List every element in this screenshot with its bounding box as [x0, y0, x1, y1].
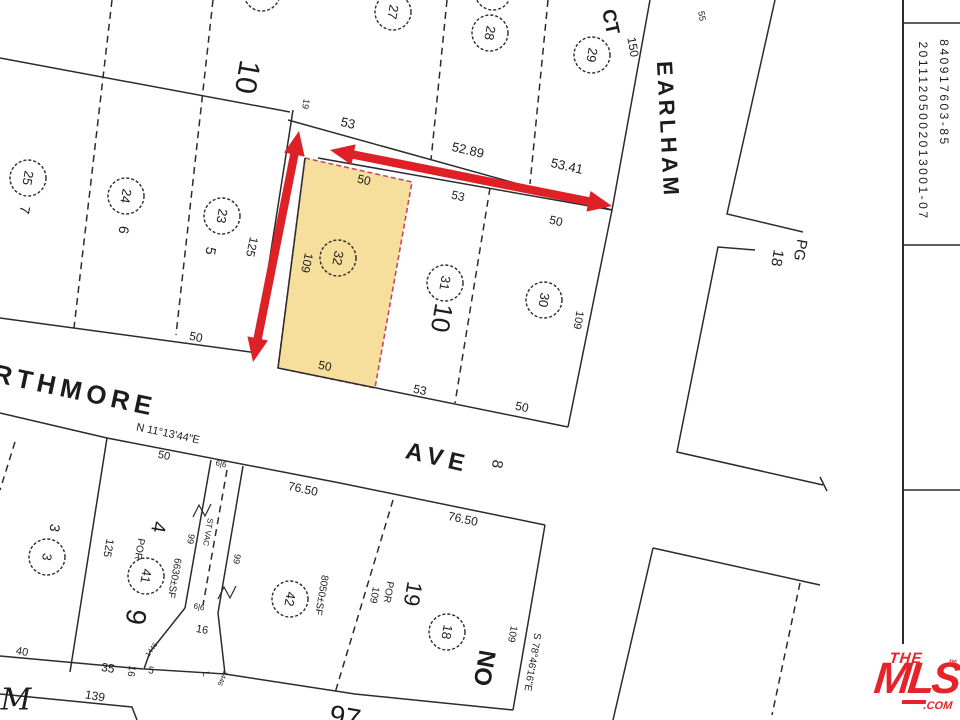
lot-number-18: 18 [438, 624, 455, 641]
parcel-32-highlight [278, 158, 412, 388]
map-label: 76.50 [447, 509, 480, 529]
street-name-swarthmore: RTHMORE [0, 358, 160, 422]
map-label: 16 [195, 623, 209, 637]
parcel-boundary-line [613, 548, 653, 720]
lot-circle-partial [475, 0, 511, 10]
plat-id-1: 840917603-85 [937, 39, 951, 146]
map-label: 8 [488, 458, 506, 469]
vacated-strip-flag [144, 608, 225, 674]
lot-number-3: 3 [39, 552, 55, 562]
map-label: 50 [548, 213, 564, 230]
lot-number-24: 24 [117, 188, 134, 205]
lot-boundary-dashed [0, 442, 15, 490]
map-label: 53 [450, 188, 466, 205]
earlham-west-edge [568, 0, 650, 427]
map-label: 53 [339, 114, 356, 132]
lot-boundary-dashed [431, 0, 447, 160]
map-label: POR [381, 580, 396, 603]
lot-boundary-dashed [74, 0, 112, 328]
map-label: 52.89 [450, 139, 485, 161]
map-label: 125 [243, 236, 261, 259]
map-label: 35 [100, 660, 116, 676]
map-label: 97 [327, 699, 363, 720]
parcel-boundary-line [653, 548, 820, 585]
map-label: 109 [367, 586, 381, 605]
map-label: 5 [147, 665, 155, 677]
lot-number-23: 23 [213, 208, 230, 225]
street-name-ct: CT [597, 7, 623, 37]
lot-number-29: 29 [583, 47, 600, 64]
mls-logo-tm: ™ [947, 658, 957, 668]
map-label: 4 [146, 520, 170, 535]
map-label: 6630±SF [165, 557, 183, 599]
map-label: 7 [16, 205, 33, 216]
street-name-earlham: EARLHAM [652, 60, 684, 199]
red-arrow-lot-depth-head [247, 336, 268, 362]
lot-circle-partial [244, 0, 280, 11]
map-label: 99 [231, 553, 243, 565]
lot-boundary-dashed [176, 0, 213, 335]
lot-number-28: 28 [481, 25, 498, 42]
map-label: 53 [412, 382, 428, 399]
lot-number-41: 41 [137, 568, 154, 585]
map-label: 109 [570, 310, 585, 330]
map-label: POR [132, 537, 147, 560]
map-label: 9 [119, 607, 152, 628]
pg-number: 18 [767, 248, 787, 267]
map-label: 5 [202, 246, 219, 257]
map-label: 76.50 [287, 479, 320, 499]
lot-number-25: 25 [19, 170, 36, 187]
map-label: 50 [188, 329, 204, 346]
block-number-10-lower: 10 [425, 301, 460, 335]
map-label: 3 [46, 523, 63, 534]
map-label: 150 [624, 36, 641, 58]
map-label: 1446 [215, 669, 228, 686]
map-label: 6|6 [215, 458, 228, 469]
map-label: 109 [505, 625, 519, 644]
lot-number-42: 42 [281, 591, 298, 608]
lot-boundary-dashed [530, 0, 548, 184]
lot-number-32: 32 [329, 250, 346, 267]
mls-logo-com: .COM [923, 700, 953, 712]
map-label: 19 [399, 580, 428, 608]
mls-logo-mls: MLS [872, 657, 960, 701]
map-label: ST VAC [201, 517, 215, 547]
map-label: 125 [100, 538, 115, 558]
map-label: 16 [125, 665, 138, 678]
street-name-partial-m: M [0, 683, 33, 718]
map-label: 99 [185, 533, 197, 545]
lot-boundary-dashed [772, 583, 800, 715]
map-label: 8050±SF [312, 574, 330, 616]
mls-logo: THE MLS ™ .COM [866, 644, 960, 720]
lot-number-27: 27 [384, 4, 401, 21]
map-label: 40 [15, 645, 29, 659]
map-label: 19 [300, 98, 312, 110]
plat-id-2: 20111205002013001-07 [916, 41, 930, 220]
bearing-north: N 11°13'44"E [135, 421, 201, 446]
map-label: 6|6 [193, 601, 206, 612]
map-label: 53.41 [549, 155, 584, 177]
street-name-partial-no: NO [468, 648, 501, 688]
earlham-east-edge [727, 0, 803, 232]
plat-map-page: 252423272829323130341421810195352.8953.4… [0, 0, 960, 720]
pg-label: PG [790, 238, 811, 262]
map-label: 50 [514, 399, 530, 416]
plat-map: 252423272829323130341421810195352.8953.4… [0, 0, 960, 720]
block-number-10: 10 [228, 58, 266, 97]
map-label: 6 [115, 225, 132, 236]
lot-boundary-dashed [455, 188, 490, 403]
map-label: 55 [696, 10, 708, 22]
map-label: L [201, 671, 212, 678]
mls-logo-underline [902, 700, 926, 704]
parcel-boundary-line [677, 247, 823, 485]
lot-number-31: 31 [436, 275, 453, 292]
street-name-ave: AVE [403, 437, 473, 478]
parcel-boundary-line [0, 318, 258, 353]
lot-number-30: 30 [535, 292, 552, 309]
map-label: 50 [157, 449, 171, 463]
